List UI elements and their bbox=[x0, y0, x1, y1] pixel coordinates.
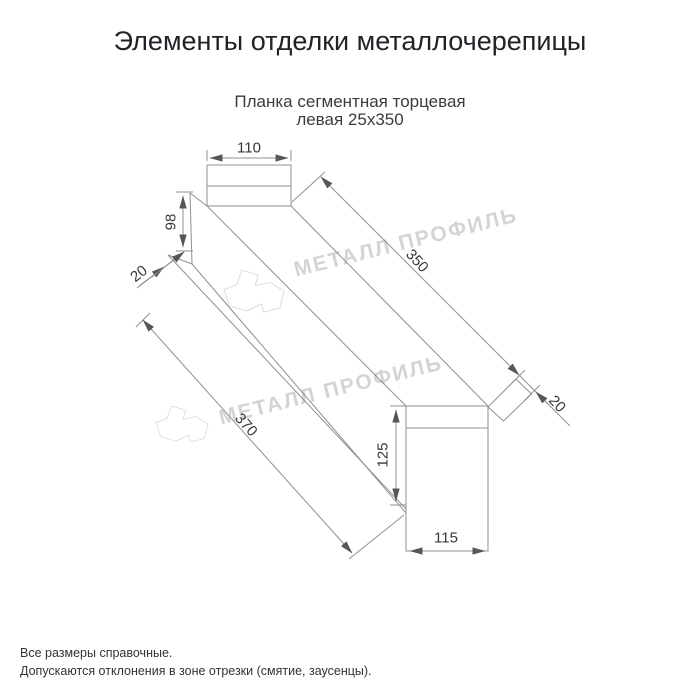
dim-line-350 bbox=[321, 177, 519, 375]
dimension-label-110: 110 bbox=[237, 140, 261, 157]
page: Элементы отделки металлочерепицы Планка … bbox=[0, 0, 700, 700]
dim-arrow bbox=[152, 252, 184, 277]
dimension-label-125: 125 bbox=[375, 442, 392, 467]
dimension-label-115: 115 bbox=[434, 530, 458, 547]
body-edge-hem bbox=[168, 255, 406, 509]
footer-note-line2: Допускаются отклонения в зоне отрезки (с… bbox=[20, 662, 372, 680]
top-face-left-edge bbox=[190, 193, 192, 264]
technical-drawing bbox=[0, 0, 700, 700]
logo-glyph-lower bbox=[156, 406, 208, 442]
dimension-label-98: 98 bbox=[163, 214, 180, 231]
dim-ext-line bbox=[292, 172, 325, 202]
body-edge-lower bbox=[192, 264, 406, 513]
logo-glyph-upper bbox=[224, 270, 284, 312]
footer-notes: Все размеры справочные. Допускаются откл… bbox=[20, 644, 372, 680]
dim-ext-line bbox=[349, 515, 404, 559]
body-edge-upper-right bbox=[291, 206, 488, 406]
footer-note-line1: Все размеры справочные. bbox=[20, 644, 372, 662]
